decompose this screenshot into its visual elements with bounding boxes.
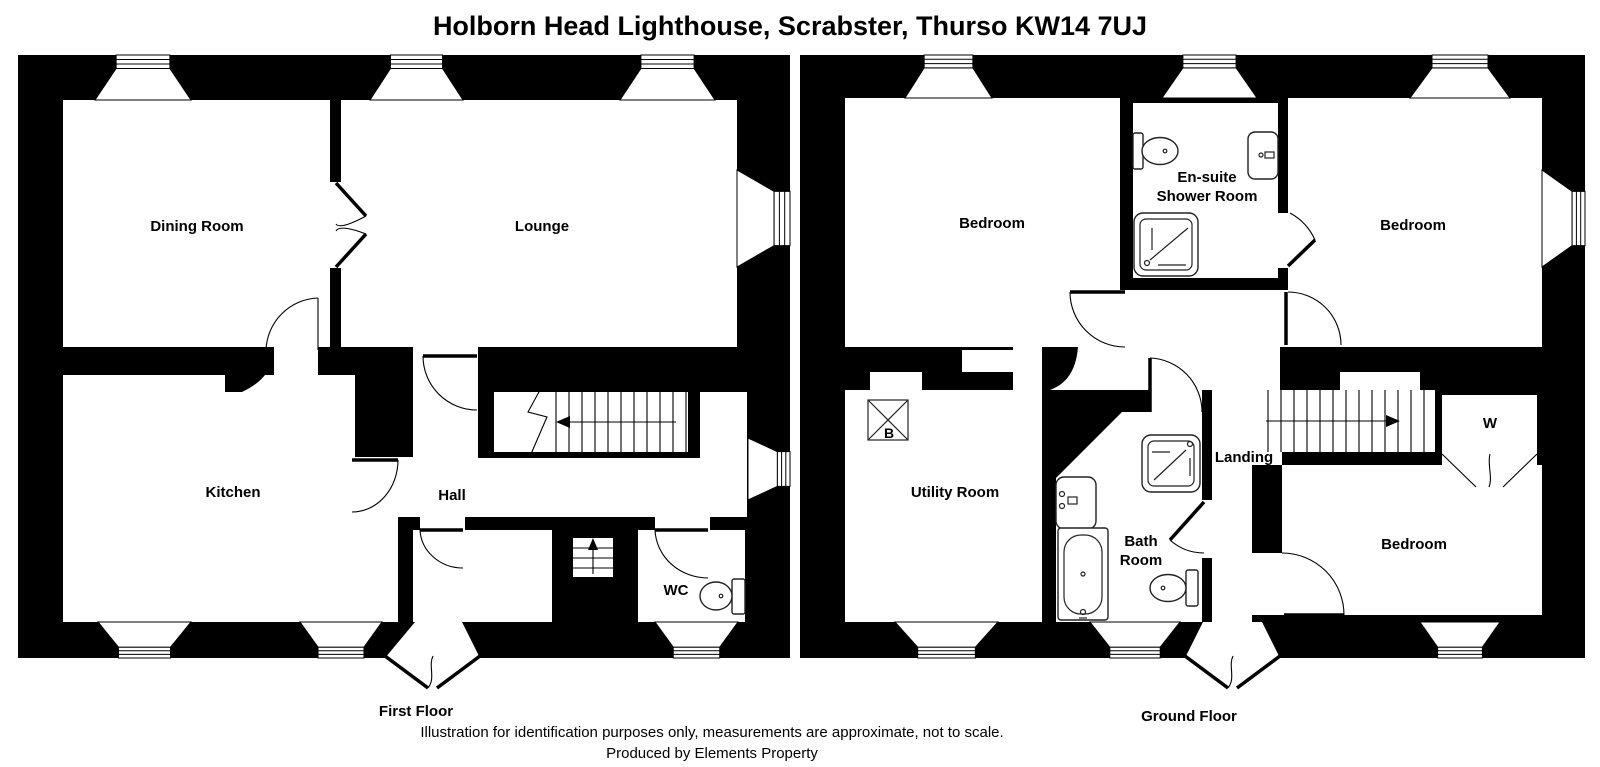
bath-tub-icon	[1058, 528, 1108, 620]
room-label-bath-line1: Bath	[1124, 533, 1157, 550]
floorplan-page: Holborn Head Lighthouse, Scrabster, Thur…	[0, 0, 1600, 767]
entrance-door	[1185, 656, 1280, 688]
room-label-bedroom-bottom-right: Bedroom	[1381, 536, 1447, 553]
room-label-kitchen: Kitchen	[205, 484, 260, 501]
credit-text: Produced by Elements Property	[606, 745, 818, 762]
room-label-landing: Landing	[1215, 449, 1273, 466]
room-label-lounge: Lounge	[515, 218, 569, 235]
ground-floor-plan: B	[800, 55, 1585, 688]
room-label-hall: Hall	[438, 487, 466, 504]
boiler-label: B	[884, 425, 894, 441]
shower-tray-icon	[1142, 435, 1200, 492]
first-floor-plan: Dining Room Lounge Kitchen Hall WC	[18, 55, 790, 688]
room-label-ensuite-line2: Shower Room	[1157, 188, 1258, 205]
room-label-dining: Dining Room	[150, 218, 243, 235]
floor-label-ground: Ground Floor	[1141, 708, 1237, 725]
disclaimer-text: Illustration for identification purposes…	[420, 724, 1003, 741]
room-label-wardrobe: W	[1483, 415, 1498, 432]
kitchen-corner-wall	[355, 347, 413, 457]
room-label-bedroom-top-left: Bedroom	[959, 215, 1025, 232]
floorplan-svg: Holborn Head Lighthouse, Scrabster, Thur…	[0, 0, 1600, 767]
room-label-wc: WC	[664, 582, 689, 599]
room-label-bath-line2: Room	[1120, 552, 1163, 569]
room-label-bedroom-top-right: Bedroom	[1380, 217, 1446, 234]
floor-label-first: First Floor	[379, 703, 453, 720]
page-title: Holborn Head Lighthouse, Scrabster, Thur…	[433, 11, 1147, 41]
sink-icon	[1056, 477, 1096, 529]
shower-tray-icon	[1134, 213, 1198, 276]
entrance-door	[385, 656, 480, 688]
room-label-utility: Utility Room	[911, 484, 999, 501]
sink-icon	[1248, 132, 1278, 179]
room-label-ensuite-line1: En-suite	[1177, 169, 1236, 186]
